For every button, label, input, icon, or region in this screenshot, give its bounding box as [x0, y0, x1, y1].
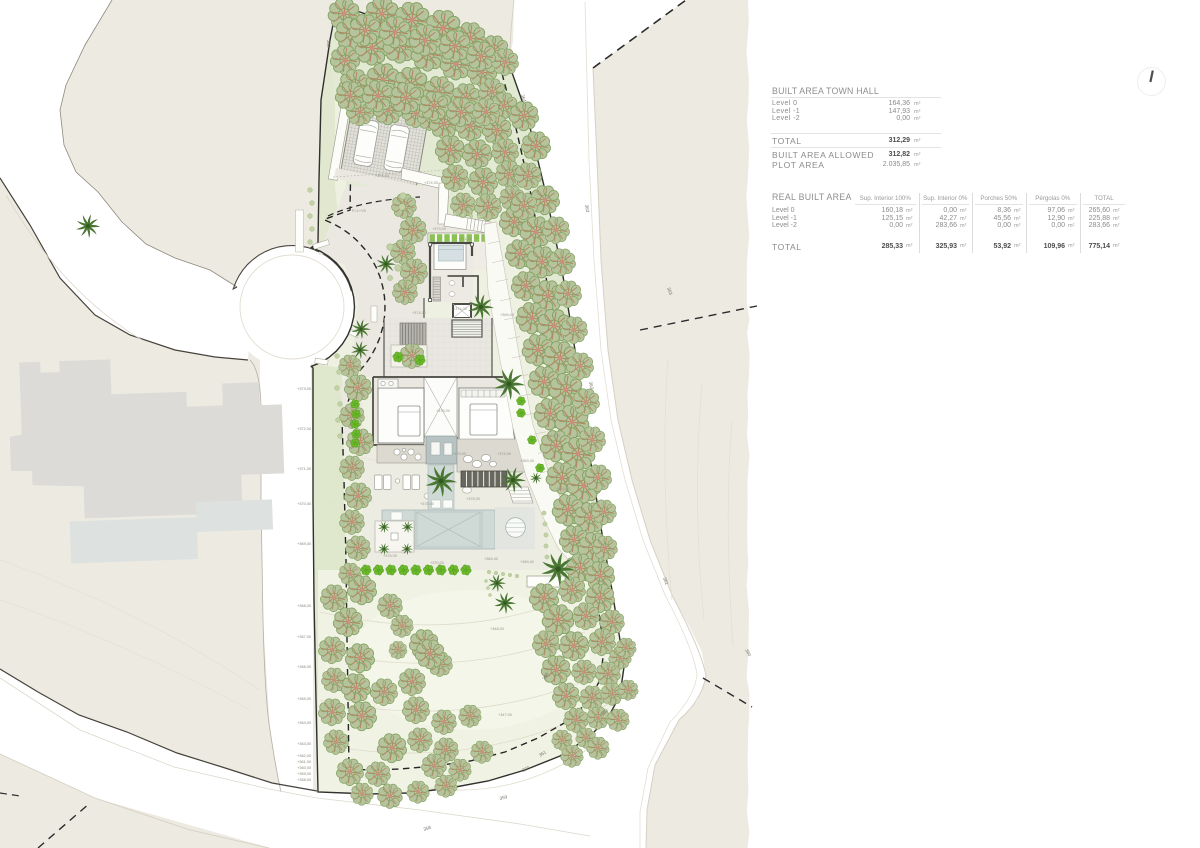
svg-text:+375,00: +375,00 [452, 452, 466, 456]
svg-text:+365,00: +365,00 [297, 697, 311, 701]
svg-text:+375,00: +375,00 [436, 409, 450, 413]
svg-text:+370,00: +370,00 [297, 502, 311, 506]
svg-text:+373,00: +373,00 [297, 387, 311, 391]
svg-text:+374,00: +374,00 [497, 452, 511, 456]
svg-text:+359,00: +359,00 [297, 772, 311, 776]
svg-text:+347,00: +347,00 [498, 713, 512, 717]
svg-text:+369,00: +369,00 [297, 542, 311, 546]
svg-text:+369,00: +369,00 [556, 487, 570, 491]
svg-text:+369,30: +369,30 [546, 434, 560, 438]
svg-text:+361,00: +361,00 [297, 760, 311, 764]
svg-text:+374,00: +374,00 [453, 307, 467, 311]
svg-text:+362,00: +362,00 [297, 754, 311, 758]
svg-text:+371,00: +371,00 [458, 237, 472, 241]
svg-text:+366,00: +366,00 [297, 665, 311, 669]
svg-text:+375,00: +375,00 [420, 502, 434, 506]
svg-text:360: 360 [326, 40, 331, 48]
svg-text:+360,00: +360,00 [297, 766, 311, 770]
svg-text:+374,00: +374,00 [412, 311, 426, 315]
svg-text:+348,00: +348,00 [490, 627, 504, 631]
svg-text:P=1+V5: P=1+V5 [352, 209, 366, 213]
svg-text:+370,00: +370,00 [430, 561, 444, 565]
svg-text:+372,00: +372,00 [297, 427, 311, 431]
svg-text:+368,00: +368,00 [297, 604, 311, 608]
svg-text:+374,00: +374,00 [424, 181, 438, 185]
svg-text:+363,00: +363,00 [297, 742, 311, 746]
svg-text:+369,40: +369,40 [484, 557, 498, 561]
svg-text:+369,40: +369,40 [520, 459, 534, 463]
svg-text:+374,00: +374,00 [375, 174, 389, 178]
svg-text:+369,40: +369,40 [500, 313, 514, 317]
svg-text:+358,00: +358,00 [297, 778, 311, 782]
svg-text:+364,00: +364,00 [297, 721, 311, 725]
svg-text:+375,00: +375,00 [383, 554, 397, 558]
svg-text:+371,00: +371,00 [297, 467, 311, 471]
svg-text:+375,00: +375,00 [466, 497, 480, 501]
svg-text:+369,40: +369,40 [520, 560, 534, 564]
svg-text:+373,00: +373,00 [432, 227, 446, 231]
svg-text:+367,00: +367,00 [297, 635, 311, 639]
